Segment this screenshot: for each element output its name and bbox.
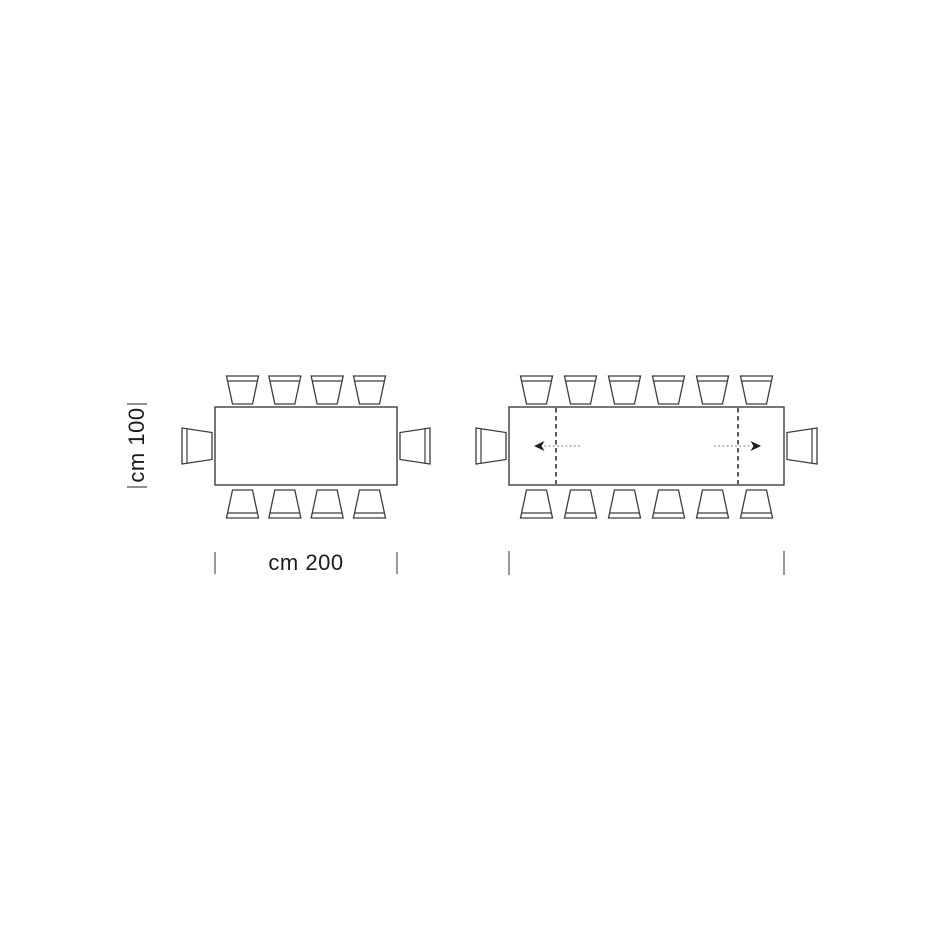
chair <box>565 376 597 404</box>
chair <box>697 376 729 404</box>
table-closed-plan <box>127 376 430 574</box>
chair <box>269 490 301 518</box>
chair <box>653 376 685 404</box>
chair <box>311 376 343 404</box>
chair <box>653 490 685 518</box>
chair <box>741 490 773 518</box>
chair <box>609 376 641 404</box>
chair <box>609 490 641 518</box>
chair <box>354 490 386 518</box>
table-top <box>215 407 397 485</box>
chair <box>741 376 773 404</box>
chair <box>227 490 259 518</box>
table-dimension-diagram: cm 100 cm 200 <box>0 0 950 950</box>
chair <box>521 490 553 518</box>
chair <box>269 376 301 404</box>
chair <box>521 376 553 404</box>
chair <box>354 376 386 404</box>
chair <box>565 490 597 518</box>
width-dimension-label: cm 200 <box>215 551 397 575</box>
chair <box>311 490 343 518</box>
depth-dimension-label: cm 100 <box>125 395 149 495</box>
table-extended-plan <box>476 376 817 575</box>
chair <box>227 376 259 404</box>
chair <box>697 490 729 518</box>
